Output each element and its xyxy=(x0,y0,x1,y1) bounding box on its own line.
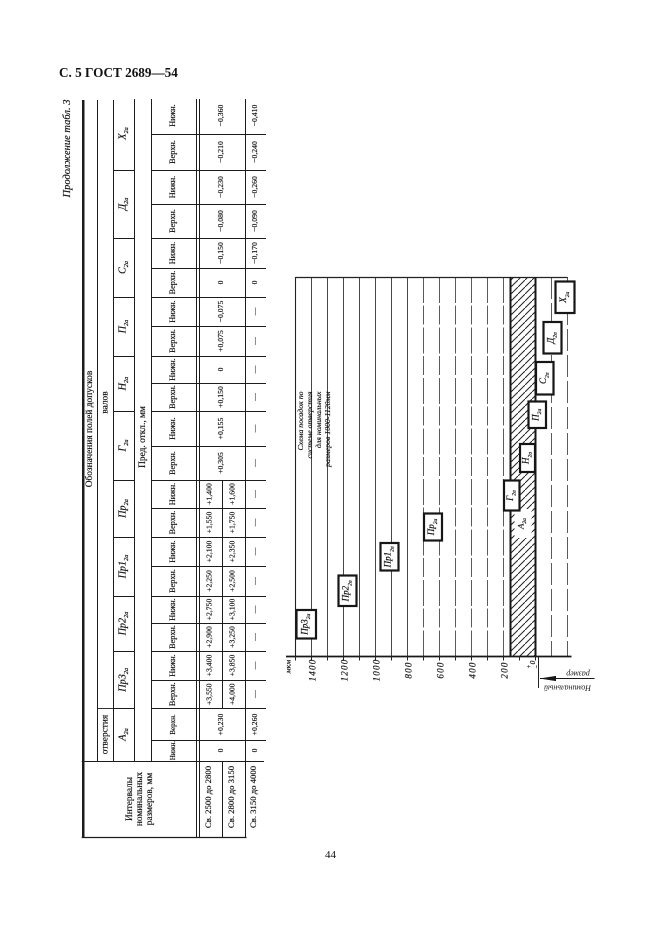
svg-text:Верхн.: Верхн. xyxy=(168,385,177,409)
svg-text:Св. 3150 до 4000: Св. 3150 до 4000 xyxy=(248,765,258,828)
svg-text:−0,090: −0,090 xyxy=(250,210,259,232)
svg-text:—: — xyxy=(250,307,259,316)
svg-text:размер: размер xyxy=(566,670,591,679)
svg-text:+0,260: +0,260 xyxy=(250,714,259,736)
svg-text:Пред. откл., мм: Пред. откл., мм xyxy=(138,406,148,468)
svg-text:+0,155: +0,155 xyxy=(216,418,225,440)
svg-text:44: 44 xyxy=(325,849,337,861)
svg-text:1200: 1200 xyxy=(340,659,350,682)
svg-text:+1,600: +1,600 xyxy=(228,483,237,505)
svg-text:0: 0 xyxy=(216,748,225,752)
svg-text:0: 0 xyxy=(216,367,225,371)
svg-text:—: — xyxy=(250,690,259,699)
svg-text:Верхн.: Верхн. xyxy=(169,714,177,735)
svg-text:системе отверстия: системе отверстия xyxy=(305,391,314,458)
svg-text:Верхн.: Верхн. xyxy=(168,511,177,535)
svg-text:200: 200 xyxy=(500,661,510,678)
svg-text:400: 400 xyxy=(468,661,478,678)
svg-text:−0,260: −0,260 xyxy=(250,176,259,198)
svg-text:Св. 2500 до 2800: Св. 2500 до 2800 xyxy=(203,765,213,828)
svg-text:Верхн.: Верхн. xyxy=(168,271,177,295)
svg-text:Верхн.: Верхн. xyxy=(168,625,177,649)
svg-text:для номинальных: для номинальных xyxy=(314,391,323,448)
svg-text:+3,850: +3,850 xyxy=(228,655,237,677)
svg-text:0: 0 xyxy=(528,660,537,664)
svg-text:размеров, мм: размеров, мм xyxy=(145,773,155,826)
svg-text:−0,360: −0,360 xyxy=(216,105,225,127)
svg-text:Нижн.: Нижн. xyxy=(168,654,177,676)
svg-text:—: — xyxy=(250,459,259,468)
svg-text:1000: 1000 xyxy=(372,659,382,682)
svg-text:800: 800 xyxy=(404,661,414,678)
svg-text:Продолжение табл. 3: Продолжение табл. 3 xyxy=(62,100,73,199)
svg-text:Нижн.: Нижн. xyxy=(168,104,177,126)
svg-text:+2,750: +2,750 xyxy=(205,599,214,621)
svg-text:+1,400: +1,400 xyxy=(205,483,214,505)
svg-text:+2,100: +2,100 xyxy=(205,541,214,563)
svg-text:Нижн.: Нижн. xyxy=(168,300,177,322)
svg-text:Св. 2800 до 3150: Св. 2800 до 3150 xyxy=(226,765,236,828)
svg-text:−0,150: −0,150 xyxy=(216,242,225,264)
svg-text:+3,400: +3,400 xyxy=(205,655,214,677)
svg-text:—: — xyxy=(250,605,259,614)
svg-text:−0,240: −0,240 xyxy=(250,141,259,163)
svg-text:+1,550: +1,550 xyxy=(205,512,214,534)
svg-text:размеров 1000-1120мм: размеров 1000-1120мм xyxy=(323,391,332,467)
svg-text:600: 600 xyxy=(436,661,446,678)
svg-text:Обозначения полей допусков: Обозначения полей допусков xyxy=(84,370,95,487)
svg-text:+2,350: +2,350 xyxy=(228,541,237,563)
svg-text:+2,250: +2,250 xyxy=(205,570,214,592)
svg-text:Верхн.: Верхн. xyxy=(168,451,177,475)
svg-text:Нижн.: Нижн. xyxy=(169,741,177,761)
svg-text:+0,230: +0,230 xyxy=(216,714,225,736)
svg-text:валов: валов xyxy=(101,391,111,414)
svg-text:—: — xyxy=(250,393,259,402)
svg-text:−0,210: −0,210 xyxy=(216,141,225,163)
svg-text:—: — xyxy=(250,577,259,586)
svg-text:+3,250: +3,250 xyxy=(228,626,237,648)
svg-text:+4,000: +4,000 xyxy=(228,683,237,705)
svg-text:—: — xyxy=(250,547,259,556)
svg-text:—: — xyxy=(250,633,259,642)
svg-text:Номинальный: Номинальный xyxy=(544,684,592,693)
svg-text:—: — xyxy=(250,490,259,499)
svg-text:Нижн.: Нижн. xyxy=(168,417,177,439)
svg-text:+2,500: +2,500 xyxy=(228,570,237,592)
svg-text:—: — xyxy=(250,337,259,346)
svg-text:мкм: мкм xyxy=(284,660,293,675)
svg-text:Верхн.: Верхн. xyxy=(168,140,177,164)
svg-text:+3,550: +3,550 xyxy=(205,683,214,705)
svg-text:—: — xyxy=(250,518,259,527)
svg-text:Верхн.: Верхн. xyxy=(168,569,177,593)
svg-text:0: 0 xyxy=(216,280,225,284)
svg-text:Нижн.: Нижн. xyxy=(168,176,177,198)
svg-text:1400: 1400 xyxy=(308,659,318,682)
svg-text:Верхн.: Верхн. xyxy=(168,682,177,706)
svg-text:—: — xyxy=(250,661,259,670)
svg-text:+0,075: +0,075 xyxy=(216,330,225,352)
svg-text:Нижн.: Нижн. xyxy=(168,483,177,505)
svg-text:Нижн.: Нижн. xyxy=(168,242,177,264)
svg-text:−0,170: −0,170 xyxy=(250,242,259,264)
svg-text:Интервалы: Интервалы xyxy=(125,776,135,821)
svg-text:+2,900: +2,900 xyxy=(205,626,214,648)
svg-text:−0,075: −0,075 xyxy=(216,301,225,323)
svg-text:+1,750: +1,750 xyxy=(228,512,237,534)
svg-text:+3,100: +3,100 xyxy=(228,599,237,621)
svg-text:Верхн.: Верхн. xyxy=(168,329,177,353)
svg-text:+0,150: +0,150 xyxy=(216,386,225,408)
svg-text:Нижн.: Нижн. xyxy=(168,598,177,620)
svg-text:С. 5 ГОСТ 2689—54: С. 5 ГОСТ 2689—54 xyxy=(59,65,178,80)
svg-text:0: 0 xyxy=(250,280,259,284)
svg-text:+0,305: +0,305 xyxy=(216,452,225,474)
svg-text:Нижн.: Нижн. xyxy=(168,358,177,380)
svg-text:−0,230: −0,230 xyxy=(216,176,225,198)
svg-text:—: — xyxy=(250,424,259,433)
svg-text:0: 0 xyxy=(250,748,259,752)
svg-text:−0,410: −0,410 xyxy=(250,105,259,127)
svg-text:Схема посадок по: Схема посадок по xyxy=(296,391,305,450)
svg-text:−0,080: −0,080 xyxy=(216,210,225,232)
svg-text:отверстия: отверстия xyxy=(101,714,111,754)
svg-text:Верхн.: Верхн. xyxy=(168,209,177,233)
svg-text:номинальных: номинальных xyxy=(135,772,145,827)
svg-text:—: — xyxy=(250,365,259,374)
svg-text:Нижн.: Нижн. xyxy=(168,540,177,562)
